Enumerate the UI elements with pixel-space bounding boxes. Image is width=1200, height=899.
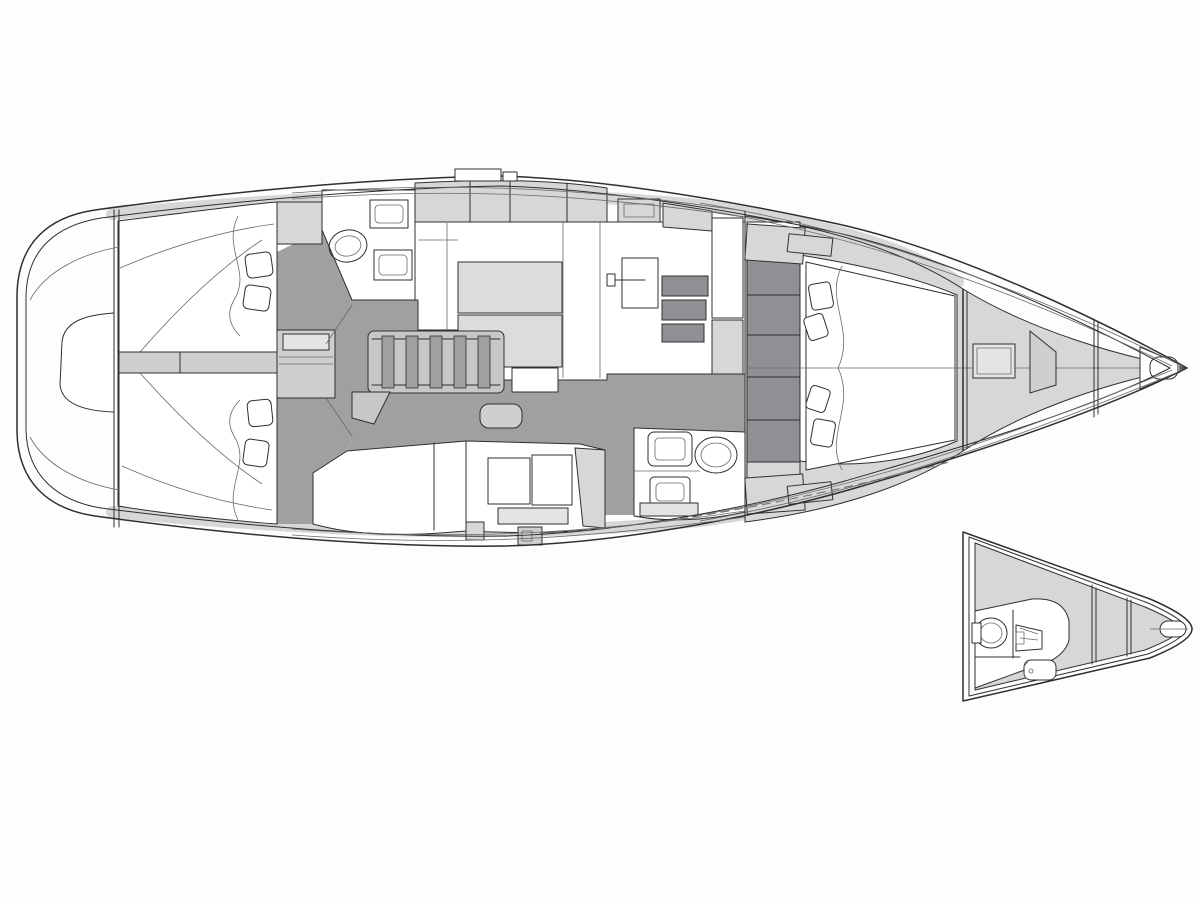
pillow (244, 251, 273, 278)
starboard-head (634, 428, 745, 520)
locker (662, 276, 708, 296)
stove (532, 455, 572, 505)
pouf (480, 404, 522, 428)
worktop (488, 458, 530, 504)
port-aft-cabin (118, 202, 277, 352)
yacht-layout-diagram (0, 0, 1200, 899)
pillow (808, 281, 834, 310)
pillow (242, 438, 269, 467)
deck-notch (503, 172, 517, 181)
sink (1023, 660, 1056, 680)
chart-table (622, 258, 658, 308)
pillow (810, 418, 836, 447)
aft-facing-seat (512, 368, 558, 392)
deck-notch (455, 169, 501, 181)
drawer (640, 503, 698, 516)
sink (370, 200, 408, 228)
stern-platform (60, 313, 114, 412)
tall-cabinet (712, 218, 743, 318)
pillow (247, 399, 274, 427)
wardrobe-stack (747, 255, 800, 462)
main-plan (17, 169, 1187, 546)
sink (648, 432, 692, 466)
salon-table (458, 262, 562, 313)
locker (662, 300, 706, 320)
sink (374, 250, 412, 280)
deck-hatch (973, 344, 1015, 378)
drawer (498, 508, 568, 524)
locker (662, 324, 704, 342)
bow-option-inset (963, 532, 1192, 701)
lamp-icon (607, 274, 615, 286)
aft-locker (277, 202, 322, 244)
tall-cabinet-base (712, 320, 743, 374)
pillow (242, 284, 271, 311)
